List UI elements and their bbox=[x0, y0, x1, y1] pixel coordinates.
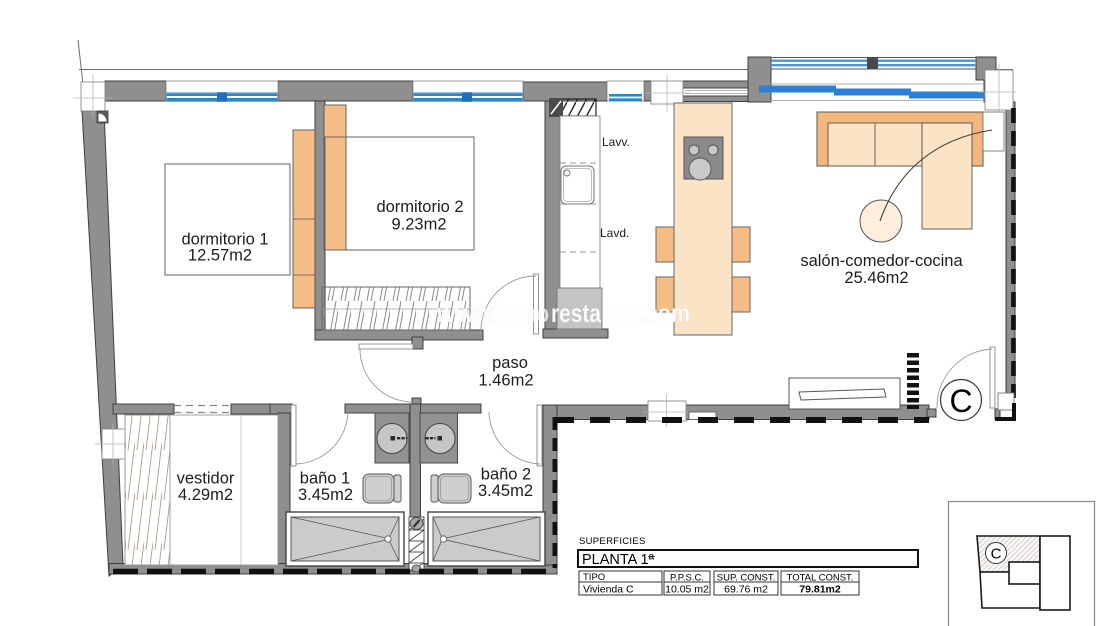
svg-text:resta: resta bbox=[551, 298, 601, 328]
svg-text:79.81m2: 79.81m2 bbox=[799, 584, 841, 596]
svg-text:12.57m2: 12.57m2 bbox=[188, 247, 252, 265]
svg-text:TIPO: TIPO bbox=[583, 572, 605, 583]
svg-text:inmo: inmo bbox=[499, 298, 549, 328]
svg-text:P.P.S.C.: P.P.S.C. bbox=[670, 573, 704, 584]
svg-text:25.46m2: 25.46m2 bbox=[844, 269, 908, 287]
svg-text:3.45m2: 3.45m2 bbox=[478, 482, 533, 500]
svg-text:SUPERFICIES: SUPERFICIES bbox=[579, 536, 646, 547]
svg-text:C: C bbox=[991, 546, 1002, 563]
svg-text:1.46m2: 1.46m2 bbox=[478, 372, 533, 390]
svg-text:salón-comedor-cocina: salón-comedor-cocina bbox=[800, 252, 963, 270]
svg-text:C: C bbox=[949, 383, 972, 419]
svg-text:4.29m2: 4.29m2 bbox=[178, 486, 233, 504]
svg-text:SUP. CONST.: SUP. CONST. bbox=[717, 573, 775, 584]
svg-text:vestidor: vestidor bbox=[177, 470, 235, 488]
svg-text:Lavv.: Lavv. bbox=[602, 135, 630, 149]
svg-text:Vivienda C: Vivienda C bbox=[583, 584, 634, 596]
svg-text:9.23m2: 9.23m2 bbox=[391, 216, 446, 234]
svg-text:.com: .com bbox=[640, 298, 690, 328]
svg-text:69.76 m2: 69.76 m2 bbox=[724, 584, 768, 596]
svg-text:TOTAL CONST.: TOTAL CONST. bbox=[787, 573, 854, 584]
svg-text:uro: uro bbox=[603, 298, 639, 328]
svg-text:3.45m2: 3.45m2 bbox=[298, 486, 353, 504]
svg-text:paso: paso bbox=[492, 354, 528, 372]
svg-text:Lavd.: Lavd. bbox=[600, 226, 629, 240]
svg-text:www.: www. bbox=[436, 298, 499, 328]
svg-text:baño 2: baño 2 bbox=[481, 466, 531, 484]
svg-text:10.05 m2: 10.05 m2 bbox=[665, 584, 709, 596]
svg-text:dormitorio 2: dormitorio 2 bbox=[376, 198, 463, 216]
svg-text:baño 1: baño 1 bbox=[300, 470, 350, 488]
svg-text:PLANTA 1ª: PLANTA 1ª bbox=[582, 552, 655, 568]
